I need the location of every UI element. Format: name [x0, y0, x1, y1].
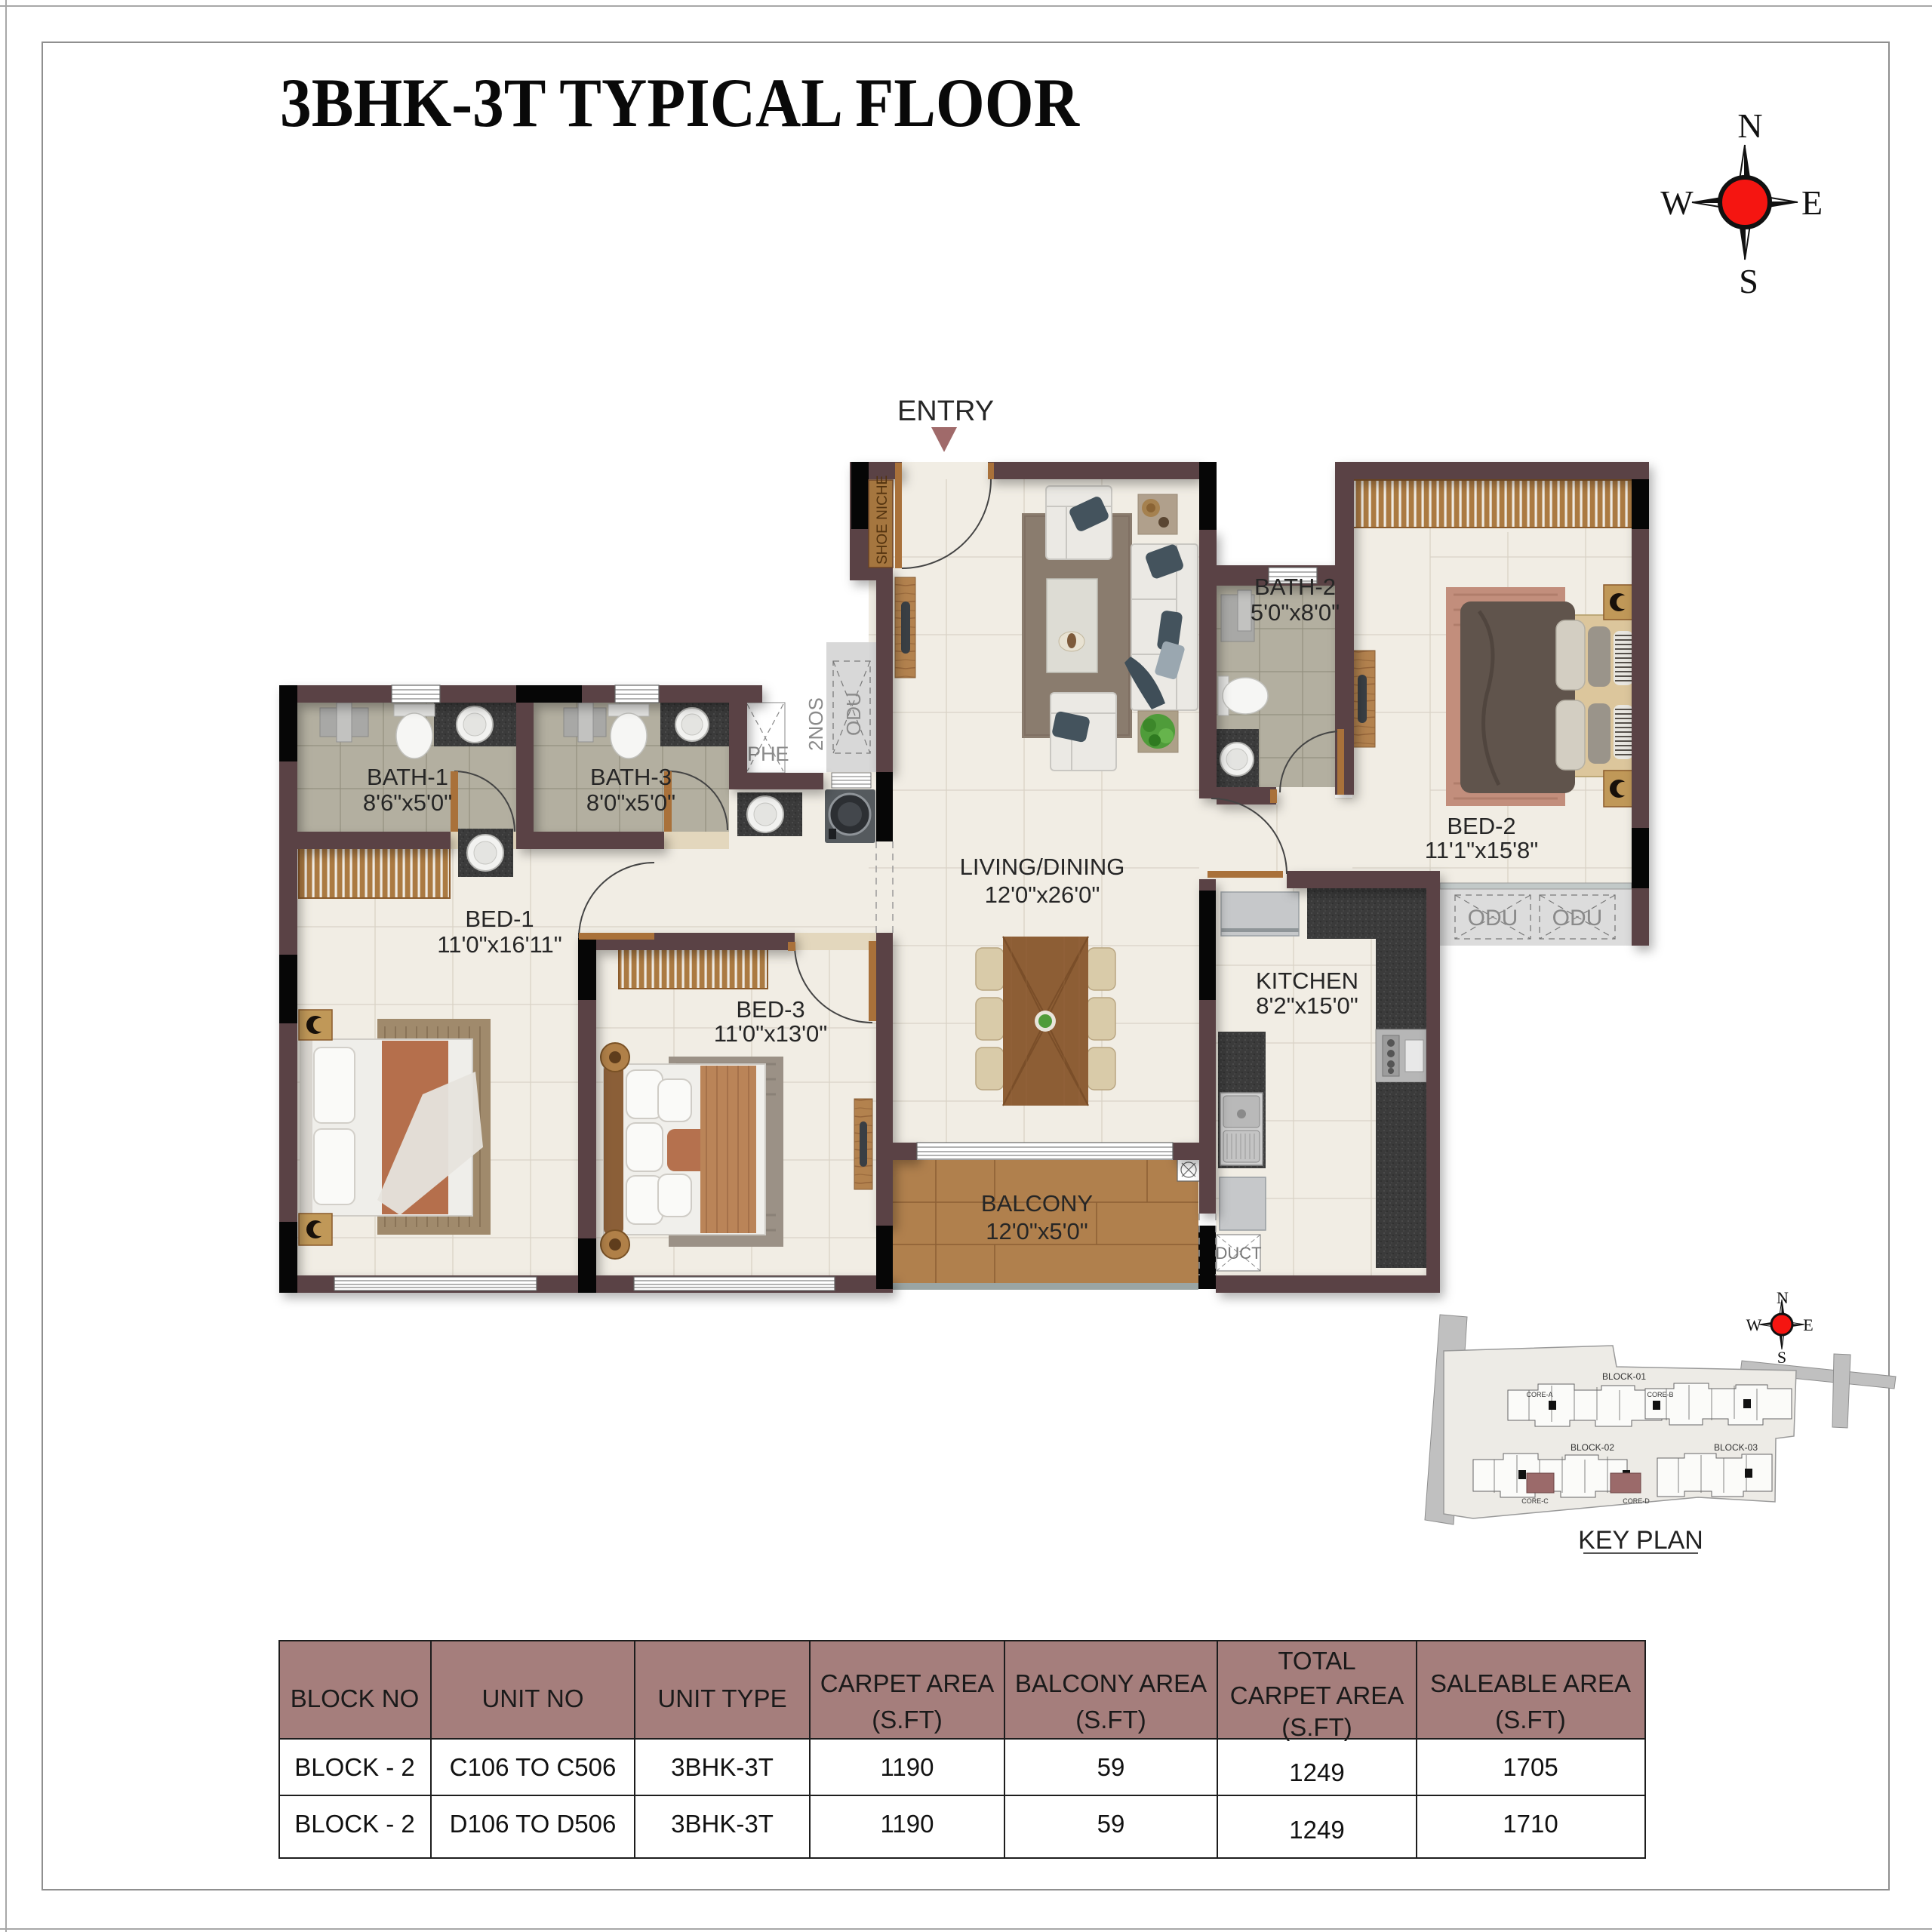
svg-text:KITCHEN: KITCHEN: [1256, 968, 1358, 994]
svg-text:11'0"x13'0": 11'0"x13'0": [714, 1020, 828, 1047]
svg-text:W: W: [1746, 1315, 1762, 1334]
svg-text:11'0"x16'11": 11'0"x16'11": [437, 931, 561, 958]
svg-text:BED-1: BED-1: [465, 906, 534, 932]
svg-text:11'1"x15'8": 11'1"x15'8": [1425, 837, 1539, 863]
svg-text:1190: 1190: [881, 1810, 934, 1838]
svg-text:ODU: ODU: [842, 692, 865, 736]
svg-text:ENTRY: ENTRY: [897, 395, 994, 427]
svg-text:BLOCK - 2: BLOCK - 2: [294, 1753, 415, 1781]
svg-text:ODU: ODU: [1552, 906, 1603, 931]
svg-text:1710: 1710: [1503, 1810, 1558, 1838]
svg-text:W: W: [1660, 183, 1694, 222]
svg-text:1249: 1249: [1289, 1816, 1344, 1844]
svg-text:3BHK-3T TYPICAL FLOOR: 3BHK-3T TYPICAL FLOOR: [280, 64, 1080, 141]
svg-text:BLOCK-01: BLOCK-01: [1602, 1371, 1646, 1382]
svg-text:12'0"x26'0": 12'0"x26'0": [985, 881, 1100, 908]
svg-text:C106 TO C506: C106 TO C506: [450, 1753, 617, 1781]
svg-text:1705: 1705: [1503, 1753, 1558, 1781]
svg-text:(S.FT): (S.FT): [872, 1706, 942, 1734]
svg-text:BATH-2: BATH-2: [1254, 574, 1336, 600]
svg-text:UNIT NO: UNIT NO: [481, 1684, 583, 1712]
svg-text:3BHK-3T: 3BHK-3T: [671, 1753, 774, 1781]
svg-text:BALCONY AREA: BALCONY AREA: [1015, 1669, 1207, 1697]
svg-text:BATH-1: BATH-1: [367, 764, 448, 790]
svg-text:5'0"x8'0": 5'0"x8'0": [1251, 599, 1340, 626]
svg-text:2NOS: 2NOS: [804, 697, 827, 751]
svg-text:CARPET AREA: CARPET AREA: [820, 1669, 994, 1697]
svg-text:ODU: ODU: [1468, 906, 1518, 931]
svg-text:BALCONY: BALCONY: [981, 1190, 1093, 1217]
svg-text:E: E: [1801, 183, 1823, 222]
svg-text:LIVING/DINING: LIVING/DINING: [960, 854, 1125, 880]
svg-text:D106 TO D506: D106 TO D506: [450, 1810, 617, 1838]
svg-text:BATH-3: BATH-3: [590, 764, 672, 790]
svg-text:CORE-A: CORE-A: [1526, 1391, 1552, 1398]
svg-text:TOTAL: TOTAL: [1278, 1647, 1355, 1675]
svg-text:BED-2: BED-2: [1447, 813, 1515, 839]
svg-text:(S.FT): (S.FT): [1075, 1706, 1146, 1734]
svg-text:CARPET AREA: CARPET AREA: [1230, 1681, 1404, 1709]
svg-text:(S.FT): (S.FT): [1281, 1713, 1352, 1741]
svg-text:UNIT TYPE: UNIT TYPE: [657, 1684, 786, 1712]
svg-text:3BHK-3T: 3BHK-3T: [671, 1810, 774, 1838]
svg-text:BLOCK-02: BLOCK-02: [1571, 1442, 1614, 1453]
svg-text:BED-3: BED-3: [736, 996, 804, 1023]
svg-text:BLOCK - 2: BLOCK - 2: [294, 1810, 415, 1838]
svg-text:DUCT: DUCT: [1215, 1244, 1261, 1263]
svg-text:KEY PLAN: KEY PLAN: [1578, 1526, 1703, 1555]
svg-text:(S.FT): (S.FT): [1495, 1706, 1565, 1734]
svg-text:8'0"x5'0": 8'0"x5'0": [586, 789, 675, 816]
svg-text:SHOE NICHE: SHOE NICHE: [875, 475, 891, 565]
svg-text:CORE-D: CORE-D: [1623, 1497, 1650, 1505]
svg-text:PHE: PHE: [747, 743, 789, 765]
svg-text:BLOCK-03: BLOCK-03: [1714, 1442, 1758, 1453]
svg-text:BLOCK NO: BLOCK NO: [291, 1684, 420, 1712]
svg-text:N: N: [1777, 1288, 1789, 1307]
svg-text:S: S: [1777, 1348, 1786, 1367]
svg-text:CORE-B: CORE-B: [1647, 1391, 1673, 1398]
svg-text:CORE-C: CORE-C: [1521, 1497, 1549, 1505]
svg-text:12'0"x5'0": 12'0"x5'0": [986, 1218, 1088, 1244]
svg-text:8'2"x15'0": 8'2"x15'0": [1256, 992, 1358, 1019]
svg-text:1190: 1190: [881, 1753, 934, 1781]
svg-text:SALEABLE AREA: SALEABLE AREA: [1430, 1669, 1631, 1697]
svg-text:E: E: [1803, 1315, 1813, 1334]
svg-text:1249: 1249: [1289, 1758, 1344, 1786]
svg-text:N: N: [1737, 106, 1762, 145]
svg-text:59: 59: [1097, 1753, 1125, 1781]
svg-text:8'6"x5'0": 8'6"x5'0": [363, 789, 452, 816]
svg-text:S: S: [1739, 262, 1758, 300]
svg-text:59: 59: [1097, 1810, 1125, 1838]
